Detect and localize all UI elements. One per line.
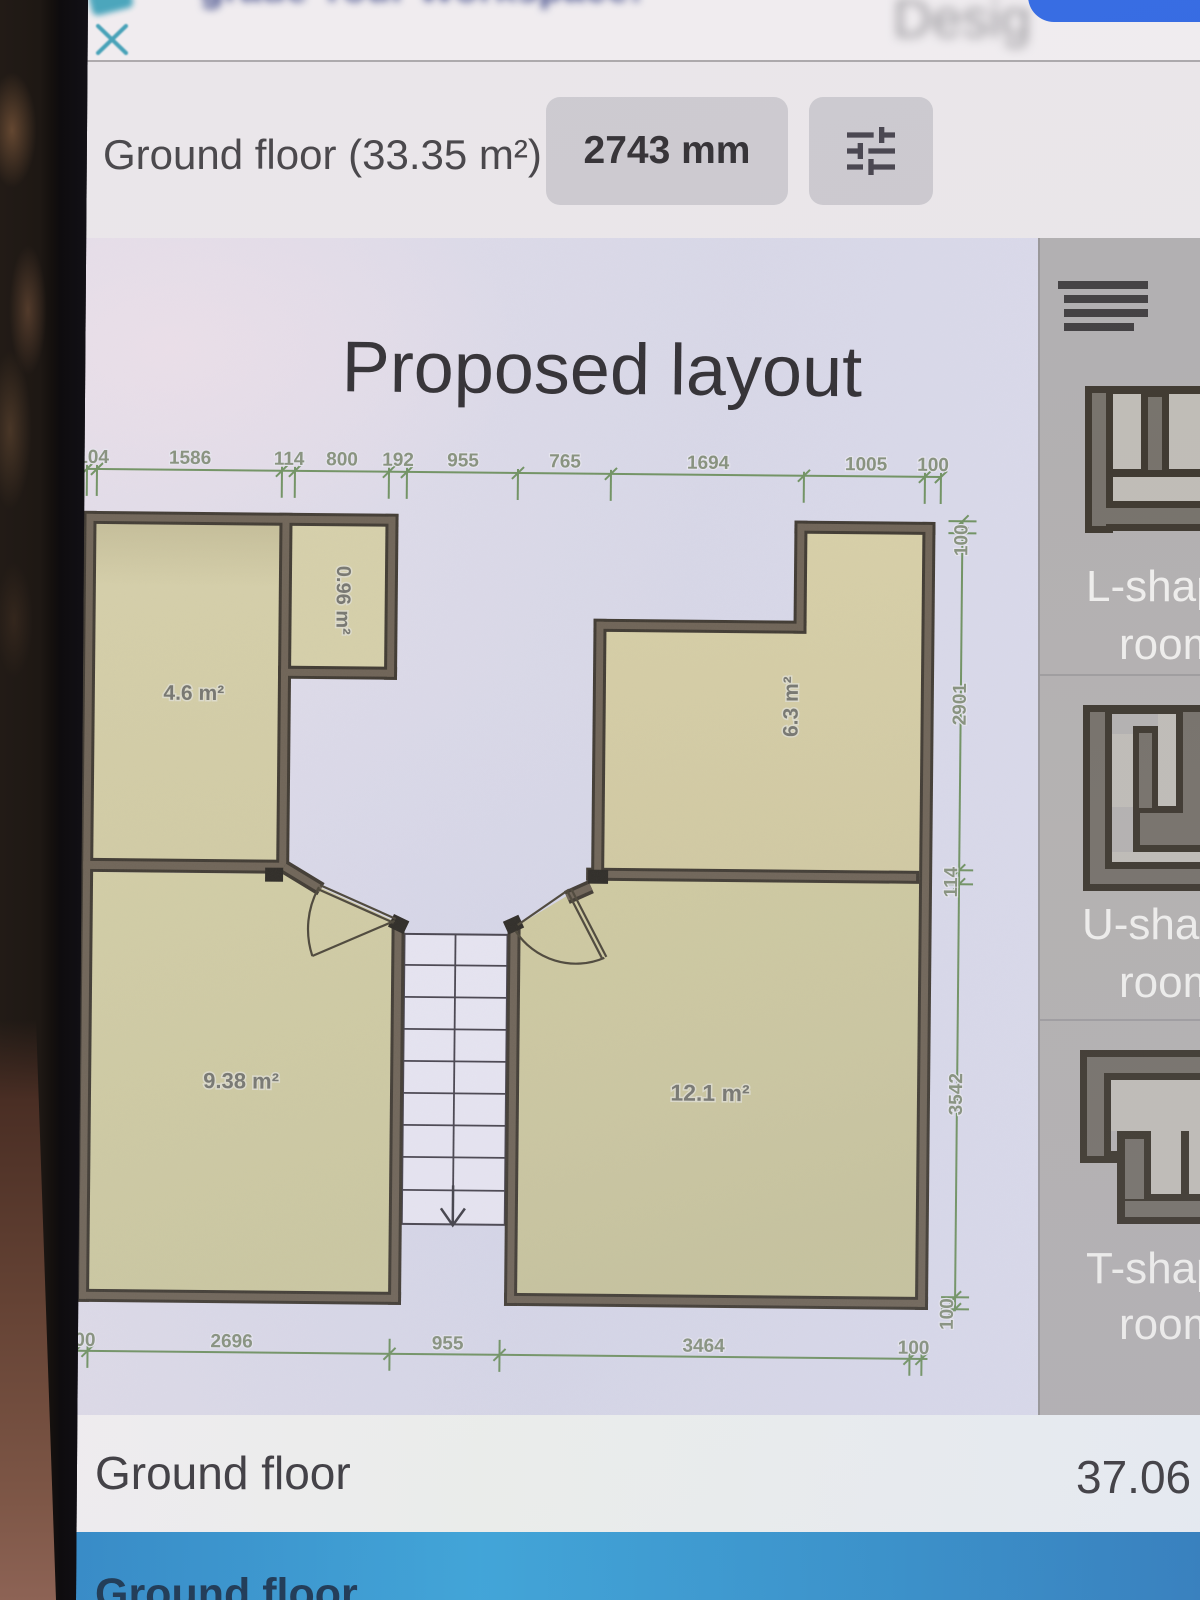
svg-text:room: room — [1119, 958, 1200, 1007]
svg-text:U-shaped: U-shaped — [1082, 900, 1200, 949]
svg-text:room: room — [1119, 1300, 1200, 1349]
svg-text:L-shaped: L-shaped — [1086, 562, 1200, 611]
svg-text:room: room — [1119, 620, 1200, 669]
svg-text:T-shaped: T-shaped — [1086, 1244, 1200, 1293]
